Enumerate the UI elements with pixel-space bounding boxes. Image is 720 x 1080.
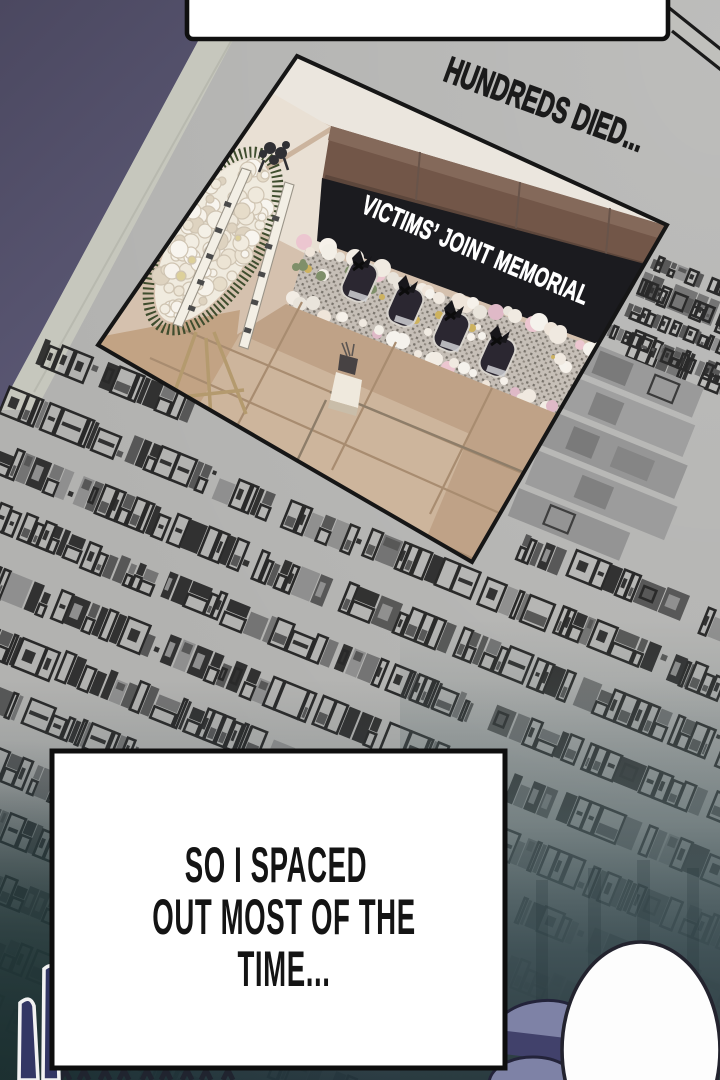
svg-text:OUT MOST OF THE: OUT MOST OF THE bbox=[152, 889, 415, 945]
svg-text:TIME...: TIME... bbox=[237, 941, 330, 997]
svg-text:SO I SPACED: SO I SPACED bbox=[185, 837, 367, 893]
